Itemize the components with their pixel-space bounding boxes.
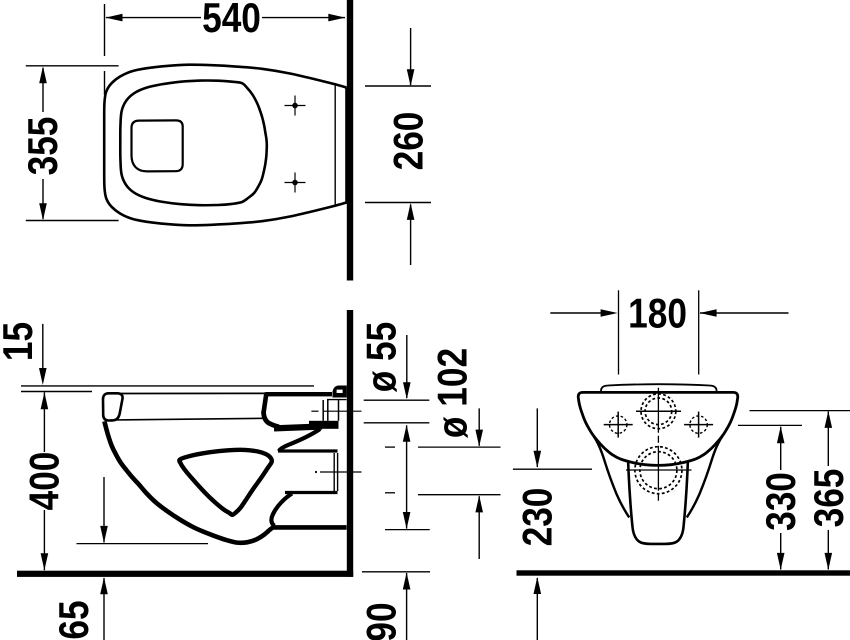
svg-text:15: 15: [0, 322, 42, 361]
svg-text:400: 400: [22, 452, 69, 511]
svg-text:180: 180: [628, 291, 687, 338]
svg-text:230: 230: [515, 488, 562, 547]
svg-text:540: 540: [202, 0, 261, 42]
svg-text:ø 55: ø 55: [359, 322, 406, 393]
svg-text:365: 365: [806, 469, 850, 528]
svg-text:355: 355: [20, 117, 67, 176]
svg-text:260: 260: [386, 112, 433, 171]
svg-text:90: 90: [359, 602, 406, 640]
svg-text:65: 65: [51, 600, 98, 639]
svg-text:ø 102: ø 102: [430, 348, 477, 438]
svg-text:330: 330: [758, 472, 805, 531]
